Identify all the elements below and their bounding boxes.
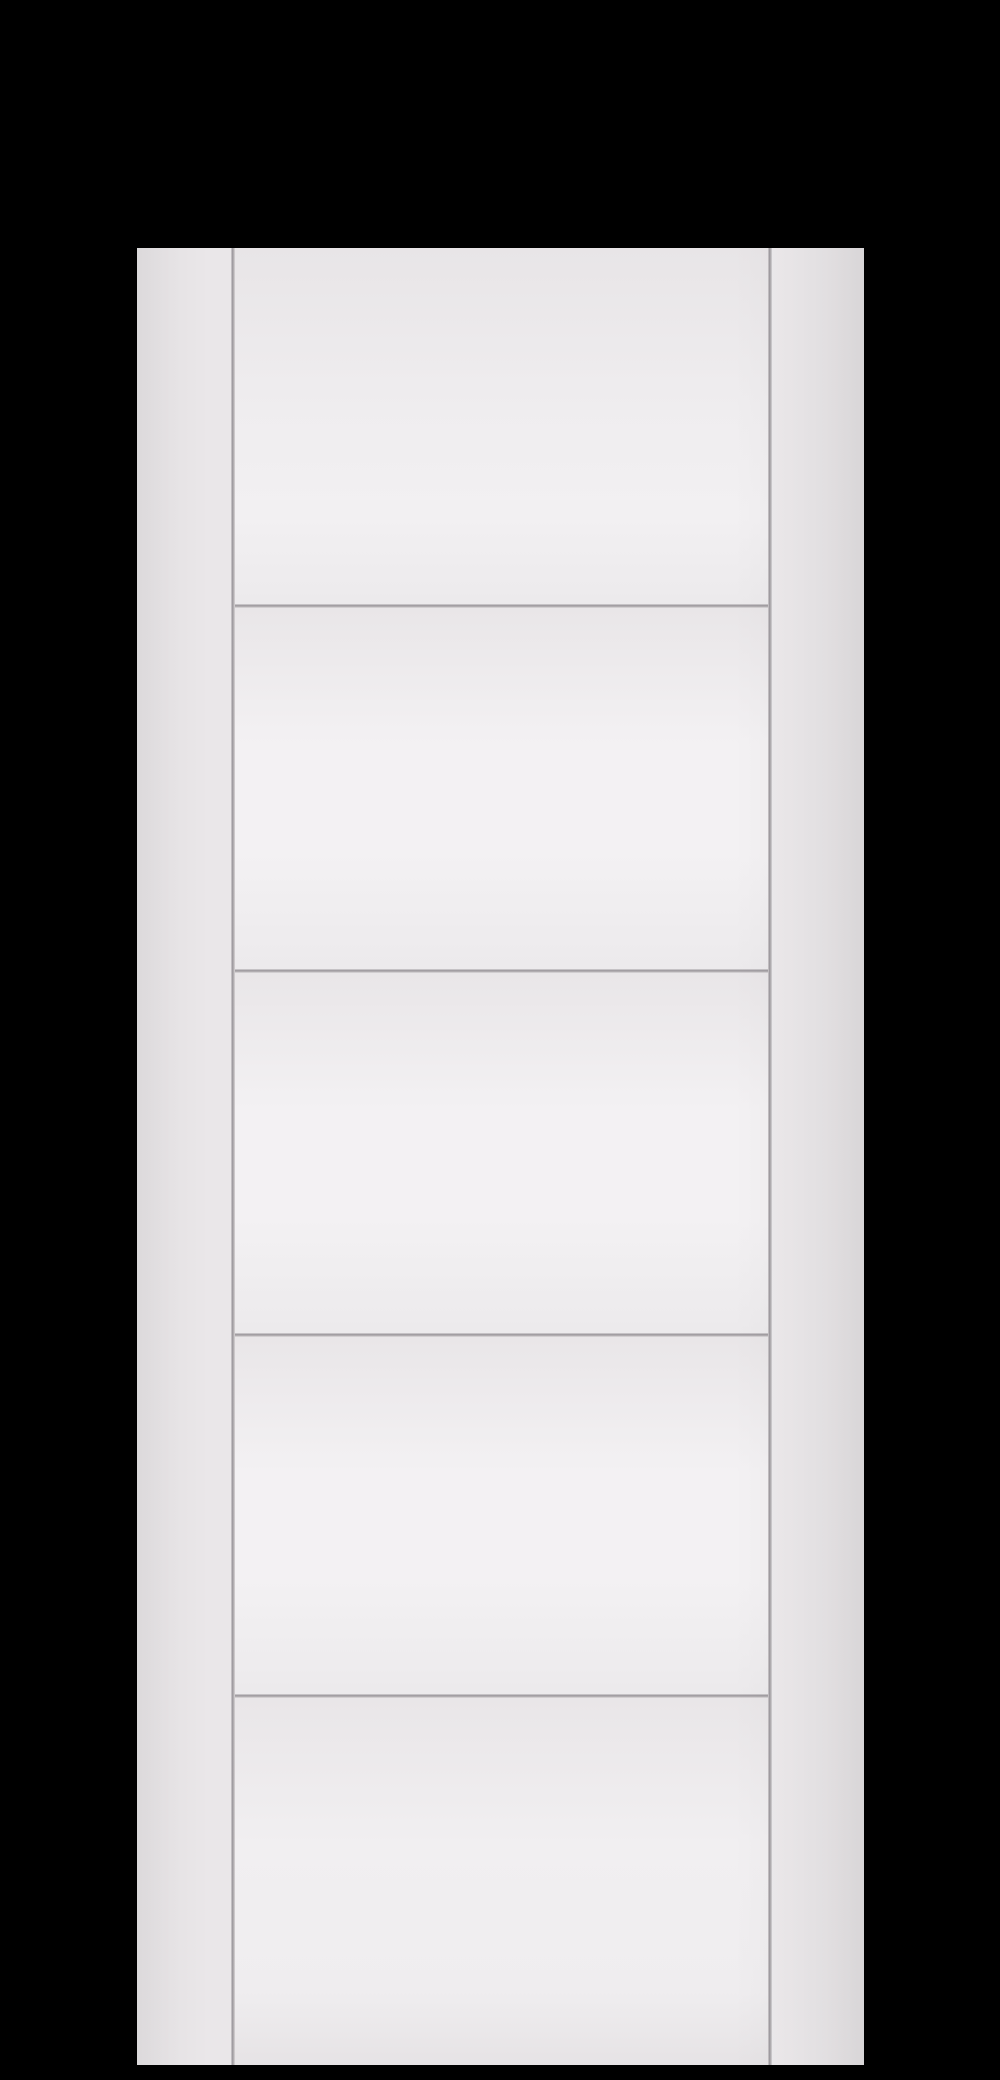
door-panel-1 xyxy=(235,248,768,604)
door-slab xyxy=(137,248,864,2065)
photo-background xyxy=(0,0,1000,2080)
door-panel-5 xyxy=(235,1698,768,2065)
door-stile-left xyxy=(137,248,231,2065)
door-panel-3 xyxy=(235,973,768,1333)
door-center-section xyxy=(235,248,768,2065)
door-stile-right xyxy=(772,248,864,2065)
door-panel-4 xyxy=(235,1337,768,1694)
door-panel-2 xyxy=(235,608,768,969)
